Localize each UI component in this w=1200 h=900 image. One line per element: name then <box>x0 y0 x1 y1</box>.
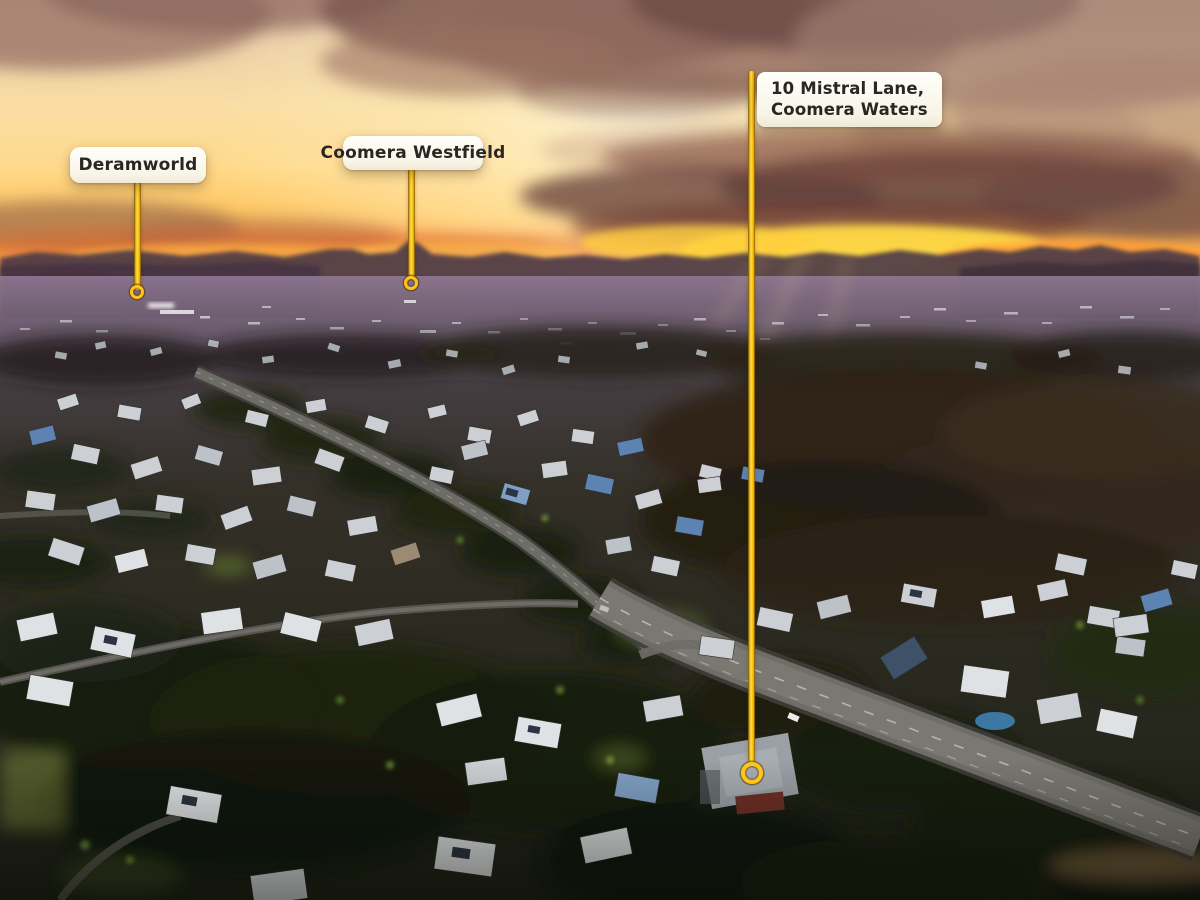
location-label: Deramworld <box>70 147 206 183</box>
pin-ring-icon <box>404 276 418 290</box>
pin-ring-icon <box>741 762 763 784</box>
pin-line <box>134 178 141 290</box>
pin-line <box>408 166 415 278</box>
address-line-2: Coomera Waters <box>771 99 928 120</box>
pin-line <box>748 71 755 763</box>
annotation-layer: Deramworld Coomera Westfield 10 Mistral … <box>0 0 1200 900</box>
address-line-1: 10 Mistral Lane, <box>771 78 924 99</box>
pin-ring-icon <box>130 285 144 299</box>
location-label: Coomera Westfield <box>343 136 483 170</box>
location-label: 10 Mistral Lane, Coomera Waters <box>757 72 942 127</box>
aerial-sunset-photo: .h1{fill:#ccd0d4}.h2{fill:#bcc2c8}.h3{fi… <box>0 0 1200 900</box>
